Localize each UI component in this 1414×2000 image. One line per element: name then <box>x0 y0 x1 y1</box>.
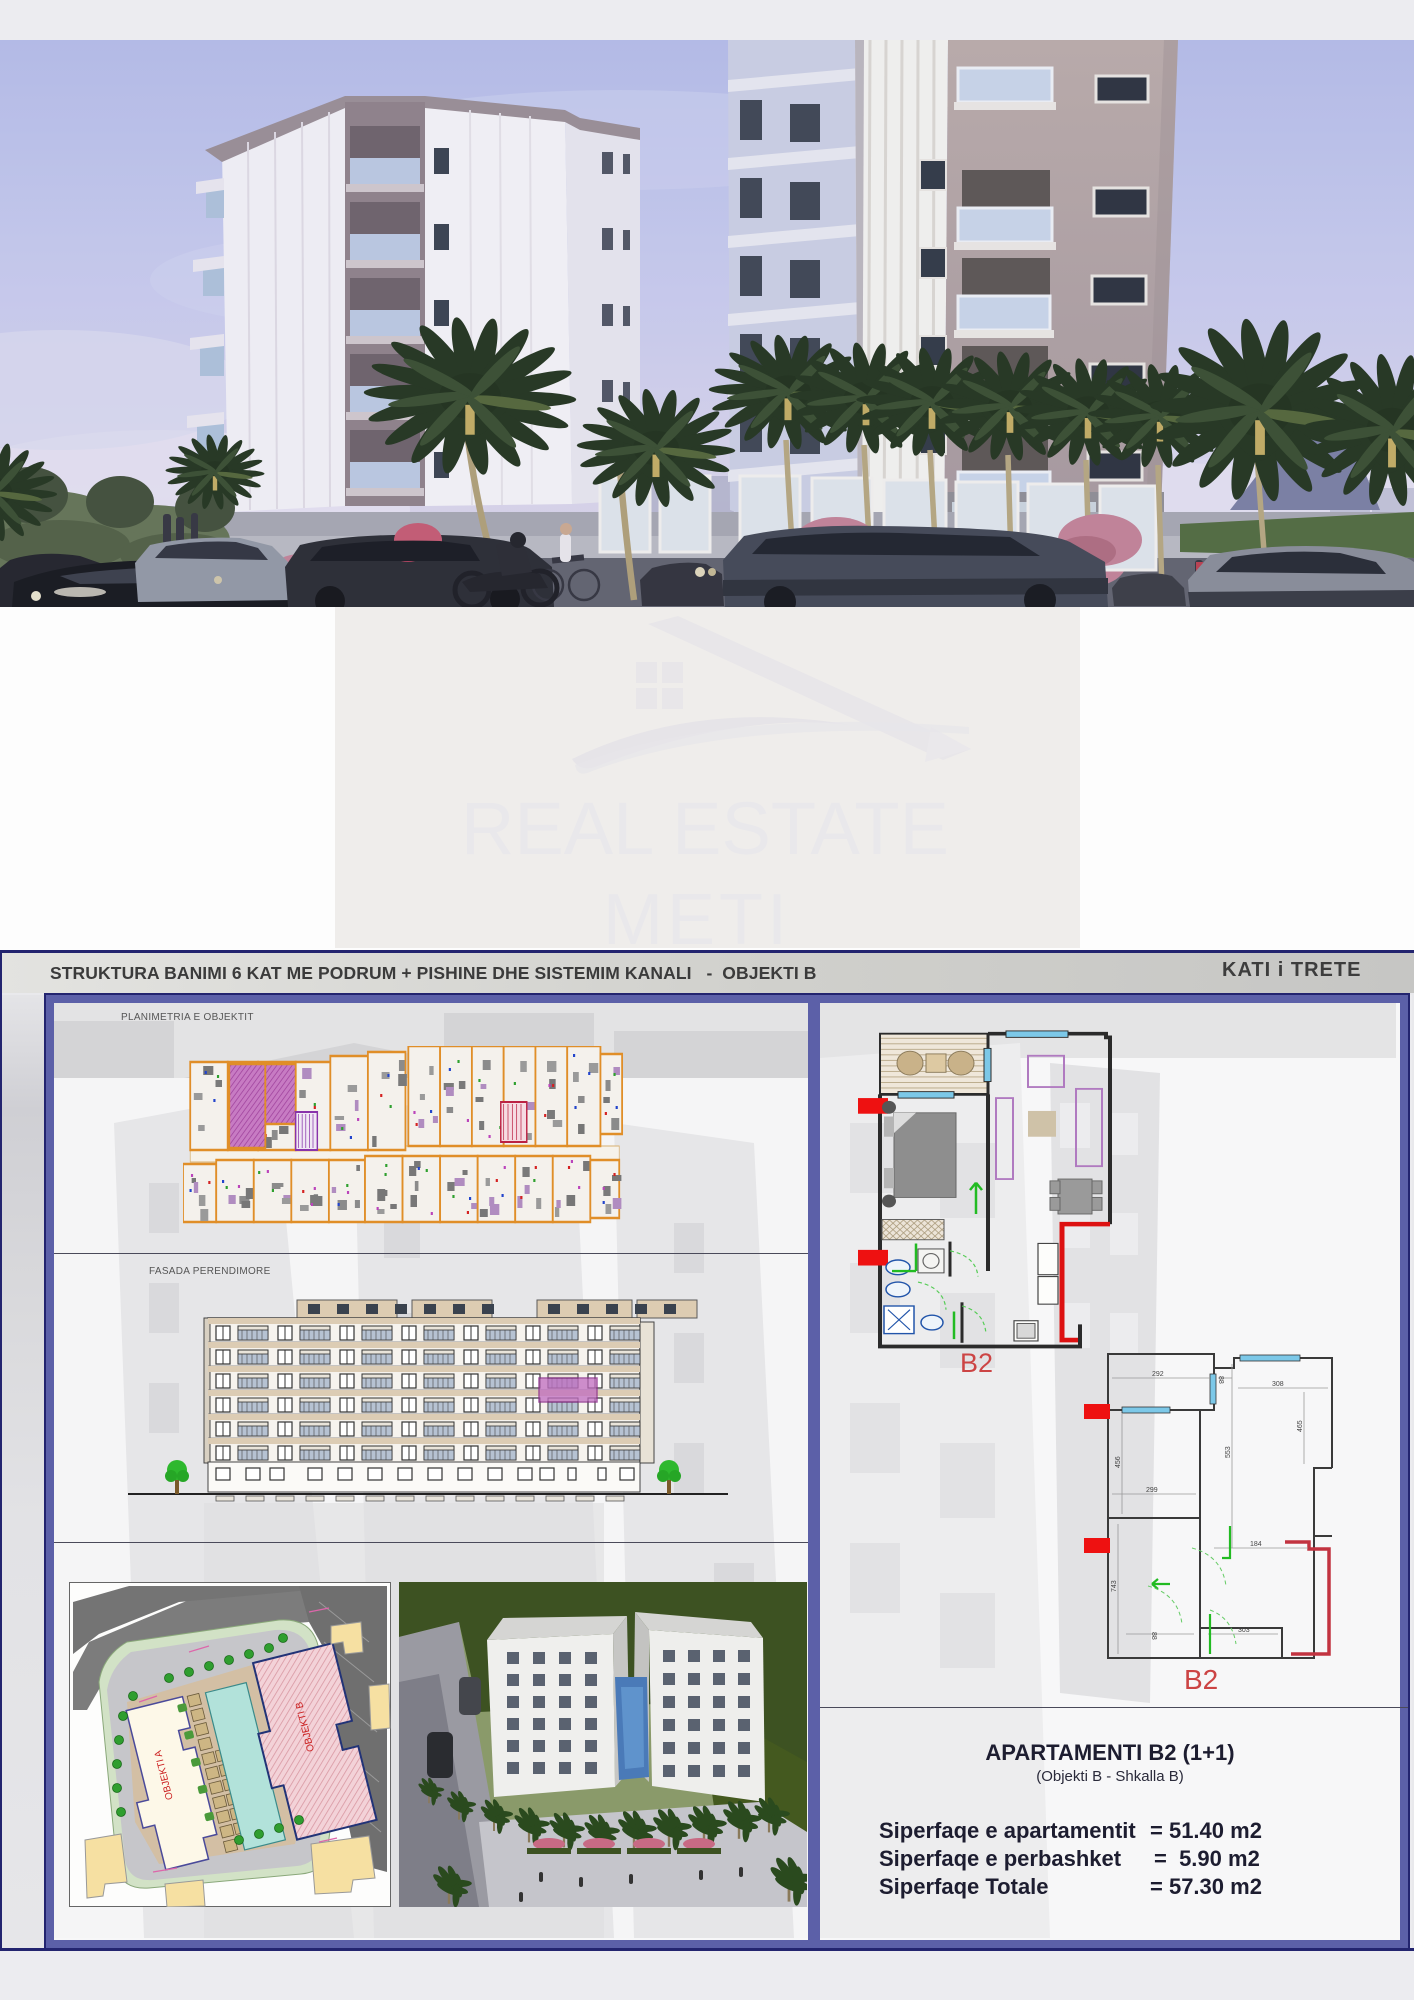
svg-text:743: 743 <box>1111 1580 1118 1592</box>
svg-text:456: 456 <box>1115 1456 1122 1468</box>
svg-text:299: 299 <box>1146 1487 1158 1494</box>
svg-text:184: 184 <box>1250 1541 1262 1548</box>
svg-text:308: 308 <box>1272 1381 1284 1388</box>
svg-text:553: 553 <box>1225 1446 1232 1458</box>
svg-text:303: 303 <box>1238 1627 1250 1634</box>
svg-text:292: 292 <box>1152 1371 1164 1378</box>
svg-text:REAL ESTATE: REAL ESTATE <box>461 787 949 870</box>
svg-text:465: 465 <box>1297 1420 1304 1432</box>
svg-text:88: 88 <box>1217 1376 1224 1384</box>
svg-text:88: 88 <box>1150 1632 1157 1640</box>
svg-text:METI: METI <box>603 880 791 948</box>
